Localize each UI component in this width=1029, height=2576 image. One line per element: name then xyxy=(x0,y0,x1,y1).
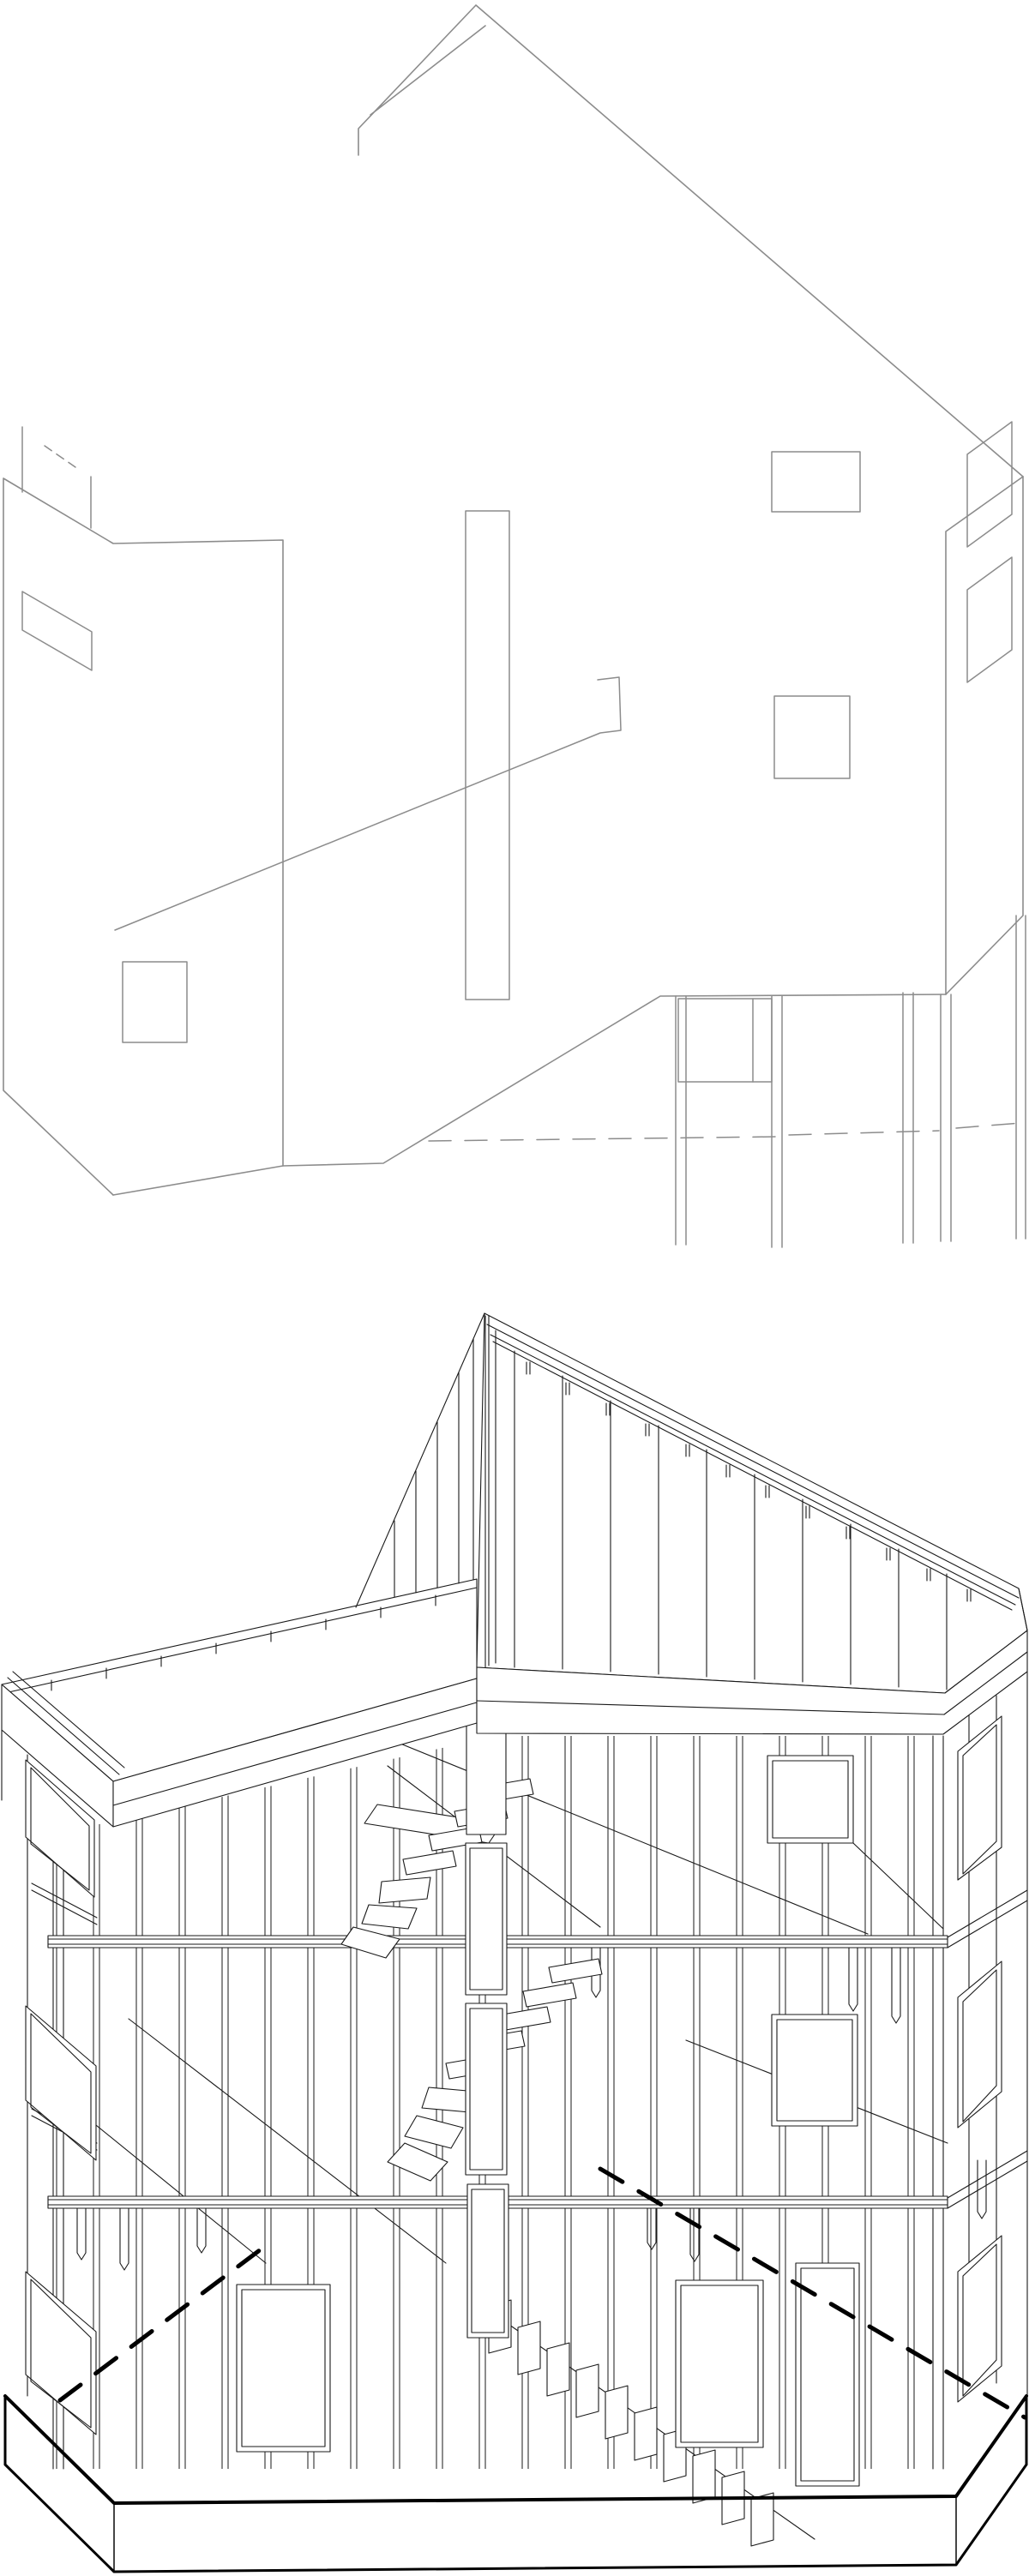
wing-window xyxy=(123,962,187,1042)
recess-panel xyxy=(678,999,772,1082)
front-window-upper xyxy=(772,452,860,512)
side-window-2f xyxy=(958,1716,1002,1880)
roof-outline xyxy=(358,5,1023,477)
left-window xyxy=(22,591,92,670)
gable-end-studs xyxy=(356,1313,484,1607)
side-window-ground xyxy=(958,2236,1002,2402)
front-window-2f xyxy=(767,1756,853,1843)
right-roof xyxy=(477,1313,1027,1734)
ground-window-left xyxy=(237,2285,330,2452)
parapet-dash xyxy=(45,446,75,467)
parapet-ticks xyxy=(22,427,91,528)
front-facade xyxy=(113,452,946,1195)
ground-dashed-line xyxy=(429,1123,1020,1141)
right-facade xyxy=(946,422,1023,994)
ground-door xyxy=(796,2263,859,2486)
structural-frame-drawing xyxy=(2,1313,1027,2572)
left-wing xyxy=(3,427,283,1195)
front-window-lower xyxy=(774,696,850,778)
drawing-sheet xyxy=(0,0,1029,2576)
ground-window-center xyxy=(676,2280,763,2447)
side-window-upper xyxy=(967,422,1012,547)
strip-window xyxy=(466,511,509,1000)
side-window-lower xyxy=(967,557,1012,682)
front-window-1f xyxy=(772,2015,857,2126)
architectural-drawings-canvas xyxy=(0,0,1029,2576)
side-window-1f xyxy=(958,1961,1002,2128)
exterior-massing-drawing xyxy=(3,5,1026,1247)
